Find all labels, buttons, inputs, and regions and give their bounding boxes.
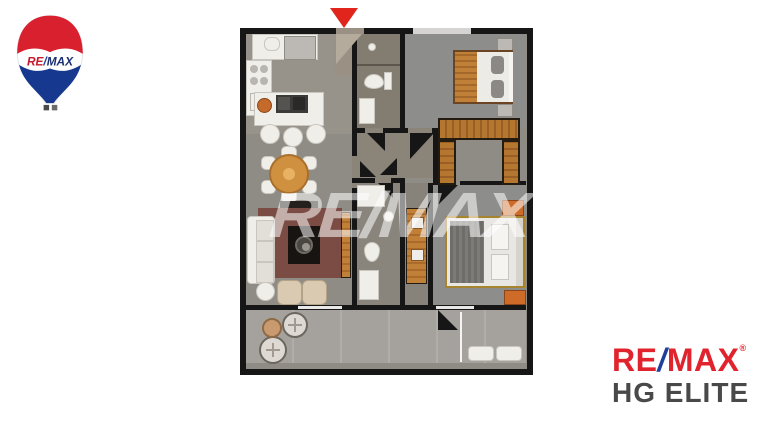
balloon-blue-base bbox=[19, 65, 81, 103]
remax-balloon-logo: RE/MAX bbox=[6, 12, 94, 114]
kitchen-appliance bbox=[284, 36, 316, 60]
door-opening-bath1 bbox=[365, 128, 383, 133]
armchair bbox=[302, 280, 327, 305]
side-table bbox=[256, 282, 275, 301]
remax-hg-elite-logo: RE/MAX® HG ELITE bbox=[612, 344, 762, 407]
balloon-red-cap bbox=[17, 16, 83, 54]
nightstand-orange bbox=[504, 290, 526, 305]
wardrobe-top bbox=[438, 118, 520, 140]
balloon-basket bbox=[44, 105, 49, 110]
nightstand bbox=[497, 104, 513, 117]
remax-watermark: RE/MAX bbox=[228, 178, 570, 252]
window-bedroom1 bbox=[413, 28, 471, 34]
kitchen-sink bbox=[264, 37, 280, 51]
wicker-chair bbox=[282, 312, 308, 338]
bench-cushion bbox=[468, 346, 494, 361]
bar-stool bbox=[283, 127, 303, 147]
door-opening-bedroom1 bbox=[408, 128, 432, 133]
bath1-vanity bbox=[359, 98, 375, 124]
wall-balcony-line bbox=[246, 305, 526, 310]
toilet bbox=[364, 74, 384, 89]
bench-cushion bbox=[496, 346, 522, 361]
floorplan: RE/MAX bbox=[240, 28, 533, 375]
toilet-tank bbox=[384, 72, 392, 90]
island-cooktop bbox=[276, 95, 308, 113]
bar-stool bbox=[260, 124, 280, 144]
balloon-wordmark: RE/MAX bbox=[27, 55, 74, 69]
shower-divider bbox=[357, 64, 400, 66]
glass-door-living bbox=[298, 306, 342, 309]
entrance-marker-icon bbox=[330, 8, 358, 28]
armchair bbox=[277, 280, 302, 305]
registered-mark: ® bbox=[739, 343, 746, 353]
subbrand-label: HG ELITE bbox=[612, 379, 762, 407]
wicker-chair bbox=[259, 336, 287, 364]
remax-wordmark: RE/MAX® bbox=[612, 344, 762, 376]
bed-1 bbox=[453, 50, 513, 104]
bath2-vanity bbox=[359, 270, 379, 300]
real-estate-floorplan-page: { "watermark": { "text": "RE/MAX" }, "ba… bbox=[0, 0, 768, 432]
balcony-table bbox=[262, 318, 282, 338]
shower-head bbox=[368, 43, 376, 51]
entrance-gap bbox=[336, 28, 364, 34]
bar-stool bbox=[306, 124, 326, 144]
glass-door-bedroom2 bbox=[436, 306, 474, 309]
fruit-plate bbox=[257, 98, 272, 113]
wall bbox=[400, 34, 405, 130]
balcony-divider bbox=[460, 312, 462, 362]
remax-slash: / bbox=[657, 342, 666, 378]
balloon-basket-2 bbox=[52, 105, 57, 110]
